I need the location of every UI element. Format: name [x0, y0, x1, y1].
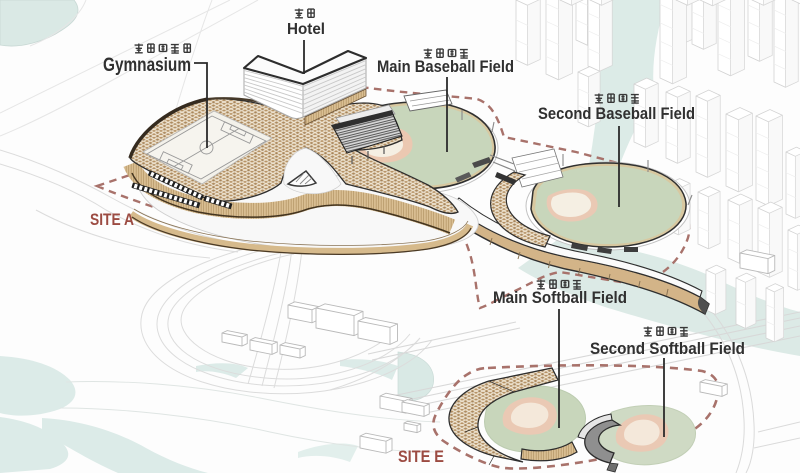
- svg-text:Main Softball Field: Main Softball Field: [493, 289, 627, 307]
- svg-text:Main Baseball Field: Main Baseball Field: [377, 58, 514, 76]
- svg-text:Hotel: Hotel: [287, 21, 325, 38]
- svg-text:Gymnasium: Gymnasium: [103, 55, 191, 76]
- svg-text:SITE E: SITE E: [398, 447, 444, 466]
- svg-text:Second Baseball Field: Second Baseball Field: [538, 104, 695, 123]
- svg-text:SITE A: SITE A: [90, 210, 134, 229]
- svg-text:Second Softball Field: Second Softball Field: [590, 339, 745, 358]
